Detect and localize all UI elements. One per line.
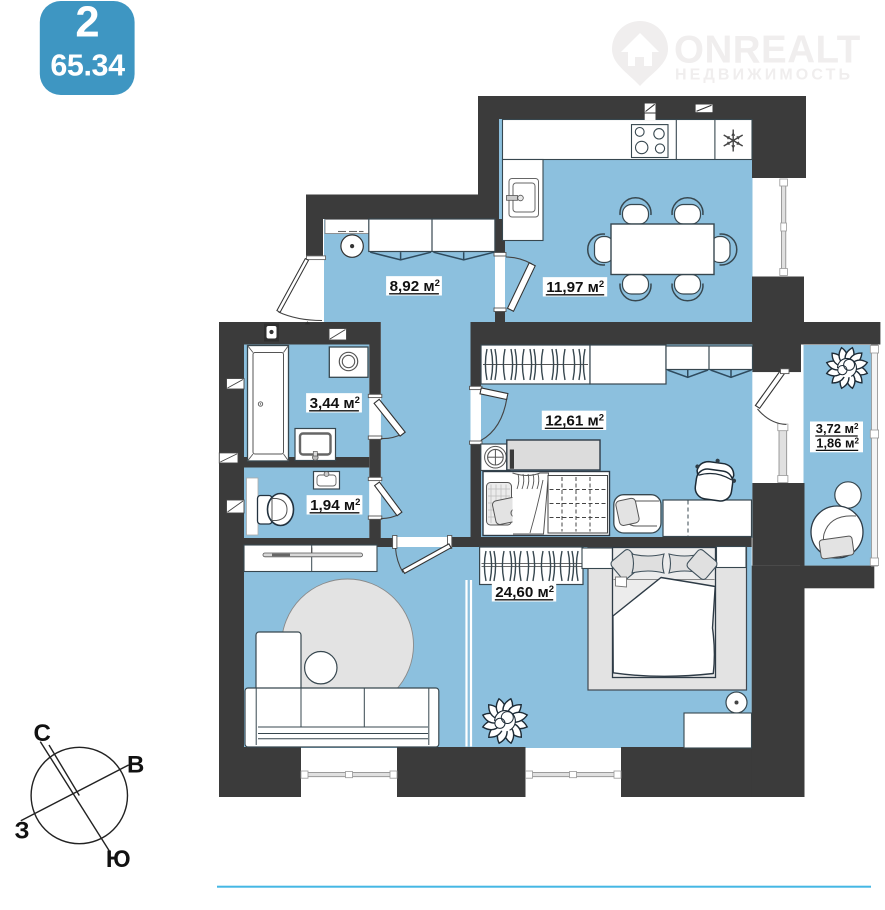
svg-text:НЕДВИЖИМОСТЬ: НЕДВИЖИМОСТЬ — [675, 66, 853, 83]
svg-text:8,92 м2: 8,92 м2 — [390, 278, 440, 295]
svg-text:12,61 м2: 12,61 м2 — [545, 413, 604, 430]
svg-text:1,94 м2: 1,94 м2 — [310, 497, 360, 514]
svg-text:ONREALT: ONREALT — [674, 29, 861, 72]
svg-text:1,86 м2: 1,86 м2 — [816, 436, 859, 451]
svg-text:3,44 м2: 3,44 м2 — [310, 395, 360, 412]
svg-text:24,60 м2: 24,60 м2 — [495, 584, 554, 601]
svg-text:Ю: Ю — [106, 846, 131, 873]
svg-text:З: З — [14, 818, 29, 845]
svg-text:С: С — [34, 720, 51, 747]
svg-text:11,97 м2: 11,97 м2 — [546, 279, 604, 296]
svg-text:2: 2 — [75, 0, 99, 47]
svg-text:3,72 м2: 3,72 м2 — [816, 421, 859, 436]
svg-text:В: В — [127, 752, 144, 779]
svg-text:65.34: 65.34 — [50, 49, 125, 83]
